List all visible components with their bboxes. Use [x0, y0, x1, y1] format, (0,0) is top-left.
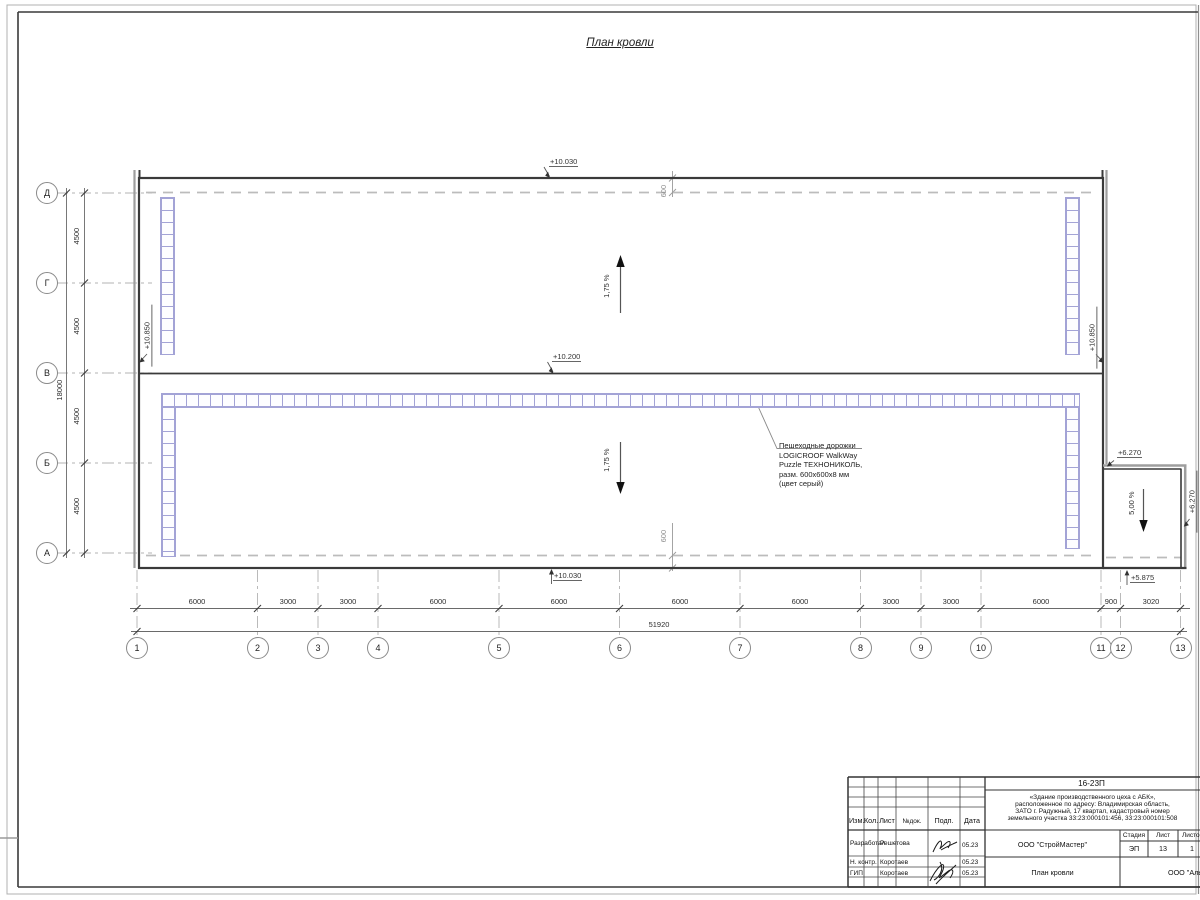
titleblock-drawing-name: План кровли	[985, 869, 1120, 877]
elevation-annex-top: +6.270	[1117, 449, 1142, 458]
dim-walkway-offset-top: 600	[660, 161, 668, 221]
grid-bubble-col-10: 10	[970, 637, 992, 659]
walkway-annotation: Пешеходные дорожки LOGICROOF WalkWay Puz…	[779, 441, 862, 489]
walkway-strip-upper-right	[1065, 197, 1080, 355]
dim-seg-12: 3020	[1121, 598, 1181, 606]
grid-bubble-col-3: 3	[307, 637, 329, 659]
grid-bubble-col-12: 12	[1110, 637, 1132, 659]
walkway-annotation-line-1: Пешеходные дорожки	[779, 441, 862, 451]
titleblock-name-1: Решетова	[880, 840, 910, 847]
titleblock-date-2: 05.23	[962, 859, 978, 866]
roof-offset-dashed-lines	[146, 193, 1181, 558]
grid-bubble-col-13: 13	[1170, 637, 1192, 659]
elevation-ridge: +10.200	[552, 353, 581, 362]
walkway-annotation-line-3: Puzzle ТЕХНОНИКОЛЬ,	[779, 460, 862, 470]
titleblock-stage-label: Стадия	[1120, 832, 1148, 839]
drawing-sheet: План кровли Д Г В Б А 1 2 3 4 5 6 7 8 9 …	[0, 0, 1200, 900]
titleblock-name-2: Коротаев	[880, 859, 908, 866]
dim-total-horizontal: 51920	[629, 621, 689, 629]
dim-v-seg-4: 4500	[73, 476, 81, 536]
grid-bubble-row-g: Г	[36, 272, 58, 294]
titleblock-sheets-value: 1	[1190, 845, 1200, 853]
elevation-left: +10.850	[143, 305, 152, 367]
grid-bubble-row-d: Д	[36, 182, 58, 204]
walkway-annotation-line-4: разм. 600х600х8 мм	[779, 470, 862, 480]
grid-bubble-col-4: 4	[367, 637, 389, 659]
dim-total-vertical: 18000	[56, 360, 64, 420]
titleblock-date-1: 05.23	[962, 842, 978, 849]
dim-seg-1: 6000	[167, 598, 227, 606]
walkway-annotation-line-5: (цвет серый)	[779, 479, 862, 489]
dim-v-seg-2: 4500	[73, 296, 81, 356]
elevation-top: +10.030	[549, 158, 578, 167]
elevation-annex-right: +6.270	[1188, 471, 1197, 533]
dim-v-seg-3: 4500	[73, 386, 81, 446]
slope-label-upper: 1,75 %	[603, 256, 611, 316]
grid-bubble-col-5: 5	[488, 637, 510, 659]
titleblock-doc-number: 16-23П	[985, 779, 1198, 788]
slope-label-lower: 1,75 %	[603, 430, 611, 490]
dim-seg-9: 3000	[921, 598, 981, 606]
annex-outline	[1103, 465, 1187, 568]
signatures	[930, 841, 957, 884]
titleblock-sheet-value: 13	[1148, 845, 1178, 853]
walkway-strip-upper-left	[160, 197, 175, 355]
dim-seg-4: 6000	[408, 598, 468, 606]
grid-bubble-col-2: 2	[247, 637, 269, 659]
sheet-title: План кровли	[540, 37, 700, 50]
linework-layer	[0, 0, 1200, 900]
elevation-annex-base: +5.875	[1130, 574, 1155, 583]
grid-bubble-col-1: 1	[126, 637, 148, 659]
dim-v-seg-1: 4500	[73, 206, 81, 266]
titleblock-col-kol: Кол.	[864, 817, 878, 825]
slope-label-annex: 5,00 %	[1128, 473, 1136, 533]
dim-seg-3: 3000	[318, 598, 378, 606]
walkway-strip-lower-horizontal	[161, 393, 1080, 408]
titleblock-org: ООО "СтройМастер"	[985, 841, 1120, 849]
dim-seg-5: 6000	[529, 598, 589, 606]
titleblock-col-list: Лист	[878, 817, 896, 825]
dimension-lines	[67, 188, 1191, 632]
titleblock-col-izm: Изм.	[849, 817, 864, 825]
titleblock-date-3: 05.23	[962, 870, 978, 877]
dim-seg-7: 6000	[770, 598, 830, 606]
titleblock-role-2: Н. контр.	[850, 859, 877, 866]
dim-walkway-offset-bottom: 600	[660, 506, 668, 566]
sheet-frame	[0, 5, 1199, 894]
grid-axis-lines	[56, 193, 1181, 638]
titleblock-sheets-label: Листов	[1182, 832, 1200, 839]
titleblock-col-data: Дата	[960, 817, 984, 825]
titleblock-col-podp: Подп.	[928, 817, 960, 825]
grid-bubble-row-a: А	[36, 542, 58, 564]
titleblock-stage-value: ЭП	[1120, 845, 1148, 853]
dim-seg-8: 3000	[861, 598, 921, 606]
walkway-strip-lower-left	[161, 406, 176, 557]
description-line-4: земельного участка 33:23:000101:456, 33:…	[987, 815, 1198, 822]
dim-seg-10: 6000	[1011, 598, 1071, 606]
grid-bubble-col-7: 7	[729, 637, 751, 659]
titleblock-role-3: ГИП	[850, 870, 863, 877]
walkway-strip-lower-right	[1065, 406, 1080, 549]
grid-bubble-row-b: Б	[36, 452, 58, 474]
walkway-offset-dims	[669, 171, 676, 572]
titleblock-contractor: ООО "Альянс"	[1168, 869, 1200, 877]
description-line-3: ЗАТО г. Радужный, 17 квартал, кадастровы…	[987, 808, 1198, 815]
grid-bubble-col-9: 9	[910, 637, 932, 659]
grid-bubble-col-8: 8	[850, 637, 872, 659]
elevation-bottom: +10.030	[553, 572, 582, 581]
dim-seg-2: 3000	[258, 598, 318, 606]
titleblock-name-3: Коротаев	[880, 870, 908, 877]
dim-seg-6: 6000	[650, 598, 710, 606]
titleblock-description: «Здание производственного цеха с АБК», р…	[987, 794, 1198, 823]
grid-bubble-col-6: 6	[609, 637, 631, 659]
titleblock-col-ndoc: №док.	[896, 818, 928, 825]
walkway-annotation-line-2: LOGICROOF WalkWay	[779, 451, 862, 461]
elevation-right: +10.850	[1088, 307, 1097, 369]
titleblock-sheet-label: Лист	[1148, 832, 1178, 839]
